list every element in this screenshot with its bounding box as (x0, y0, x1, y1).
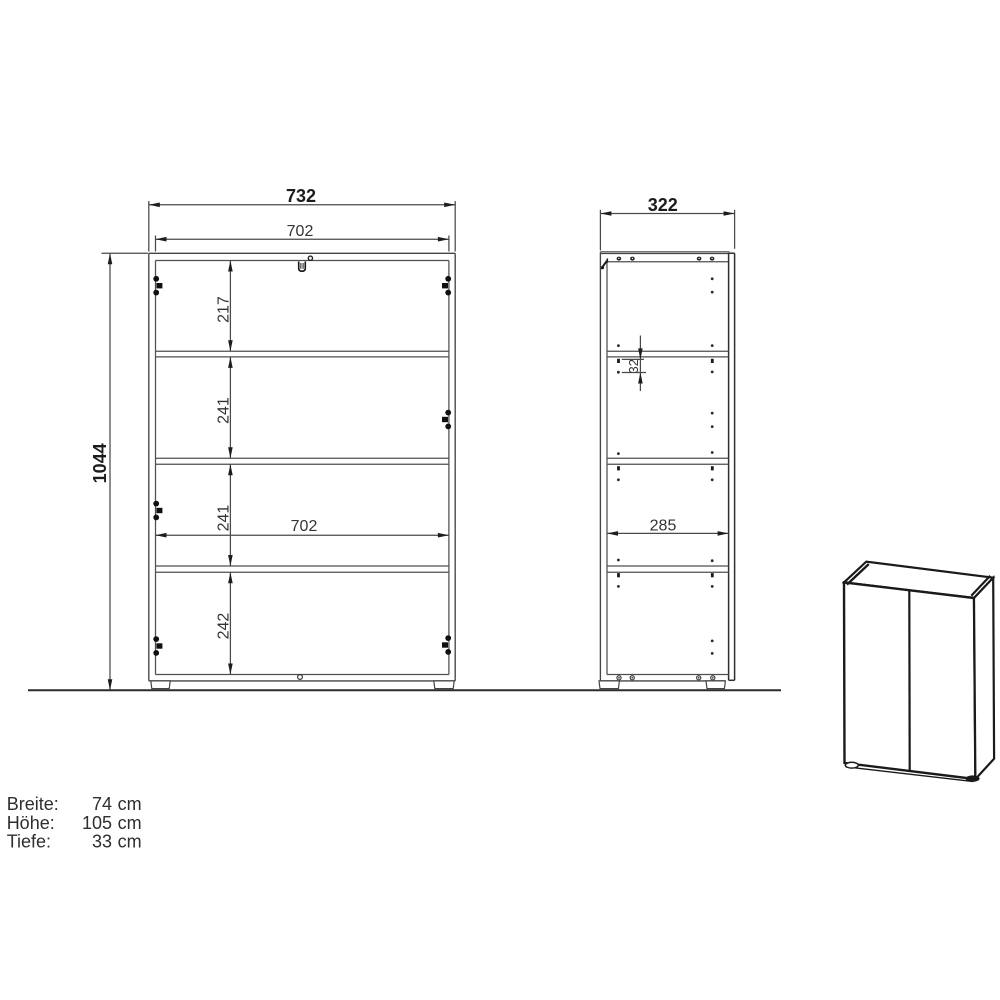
svg-text:cm: cm (118, 813, 142, 833)
svg-text:732: 732 (286, 186, 316, 206)
svg-text:241: 241 (216, 505, 233, 532)
svg-text:32: 32 (626, 359, 641, 373)
svg-text:Breite:: Breite: (7, 794, 59, 814)
svg-text:cm: cm (118, 794, 142, 814)
svg-text:322: 322 (648, 195, 678, 215)
svg-text:74: 74 (92, 794, 112, 814)
svg-text:1044: 1044 (90, 443, 110, 483)
svg-text:cm: cm (118, 831, 142, 851)
svg-text:33: 33 (92, 831, 112, 851)
svg-text:Höhe:: Höhe: (7, 813, 55, 833)
svg-text:Tiefe:: Tiefe: (7, 831, 51, 851)
svg-text:242: 242 (216, 613, 233, 640)
svg-text:702: 702 (287, 223, 314, 240)
svg-text:217: 217 (216, 296, 233, 323)
svg-text:105: 105 (82, 813, 112, 833)
svg-text:241: 241 (216, 397, 233, 424)
svg-text:285: 285 (650, 517, 677, 534)
svg-text:702: 702 (291, 518, 318, 535)
